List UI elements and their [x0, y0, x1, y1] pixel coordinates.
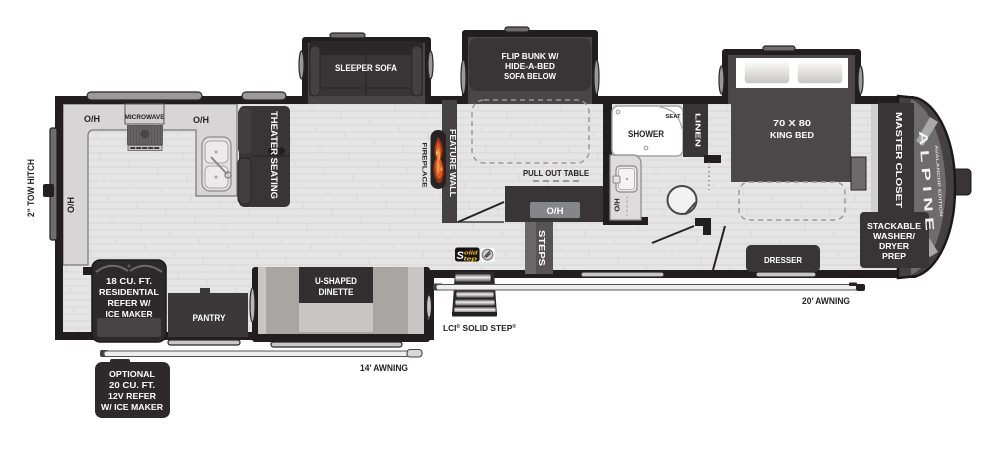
- svg-text:SOFA BELOW: SOFA BELOW: [504, 71, 557, 81]
- svg-text:14’ AWNING: 14’ AWNING: [360, 363, 408, 373]
- svg-text:FLIP BUNK W/: FLIP BUNK W/: [502, 51, 560, 61]
- svg-text:tep: tep: [464, 257, 478, 263]
- svg-text:O/H: O/H: [193, 115, 209, 125]
- svg-text:HIDE-A-BED: HIDE-A-BED: [505, 61, 555, 71]
- svg-text:OPTIONAL: OPTIONAL: [109, 369, 155, 379]
- svg-text:LINEN: LINEN: [694, 113, 703, 147]
- svg-text:O/H: O/H: [547, 206, 564, 217]
- svg-text:O/H: O/H: [613, 198, 622, 211]
- svg-text:MASTER CLOSET: MASTER CLOSET: [894, 112, 903, 208]
- svg-text:PANTRY: PANTRY: [193, 313, 226, 323]
- svg-text:STACKABLE: STACKABLE: [867, 221, 921, 231]
- svg-text:20’ AWNING: 20’ AWNING: [802, 296, 850, 306]
- svg-text:SEAT: SEAT: [666, 114, 682, 120]
- svg-text:U-SHAPED: U-SHAPED: [315, 276, 357, 286]
- svg-text:LCI® SOLID STEP®: LCI® SOLID STEP®: [443, 323, 516, 333]
- svg-text:W/ ICE MAKER: W/ ICE MAKER: [101, 402, 163, 412]
- svg-text:WASHER/: WASHER/: [873, 231, 916, 241]
- svg-text:SHOWER: SHOWER: [628, 129, 664, 139]
- svg-text:2” TOW HITCH: 2” TOW HITCH: [26, 159, 36, 217]
- svg-text:20 CU. FT.: 20 CU. FT.: [109, 380, 155, 390]
- svg-text:O/H: O/H: [84, 114, 100, 124]
- svg-text:FIREPLACE: FIREPLACE: [421, 143, 428, 189]
- svg-text:DINETTE: DINETTE: [319, 287, 354, 297]
- svg-text:ICE MAKER: ICE MAKER: [106, 309, 153, 319]
- svg-text:MICROWAVE: MICROWAVE: [125, 114, 166, 121]
- svg-text:STEPS: STEPS: [537, 230, 546, 267]
- svg-text:KING BED: KING BED: [770, 130, 814, 140]
- svg-text:DRESSER: DRESSER: [764, 255, 802, 265]
- svg-text:THEATER SEATING: THEATER SEATING: [269, 111, 279, 199]
- svg-text:REFER W/: REFER W/: [108, 298, 152, 308]
- svg-text:70 X 80: 70 X 80: [773, 118, 811, 128]
- svg-text:DRYER: DRYER: [879, 241, 909, 251]
- svg-text:PULL OUT TABLE: PULL OUT TABLE: [523, 168, 589, 178]
- svg-text:SLEEPER SOFA: SLEEPER SOFA: [335, 63, 397, 73]
- svg-text:18 CU. FT.: 18 CU. FT.: [106, 276, 152, 286]
- svg-text:12V REFER: 12V REFER: [108, 391, 156, 401]
- svg-text:O/H: O/H: [66, 197, 76, 213]
- svg-text:RESIDENTIAL: RESIDENTIAL: [99, 287, 159, 297]
- svg-text:PREP: PREP: [882, 251, 906, 261]
- svg-text:FEATURE WALL: FEATURE WALL: [448, 129, 457, 197]
